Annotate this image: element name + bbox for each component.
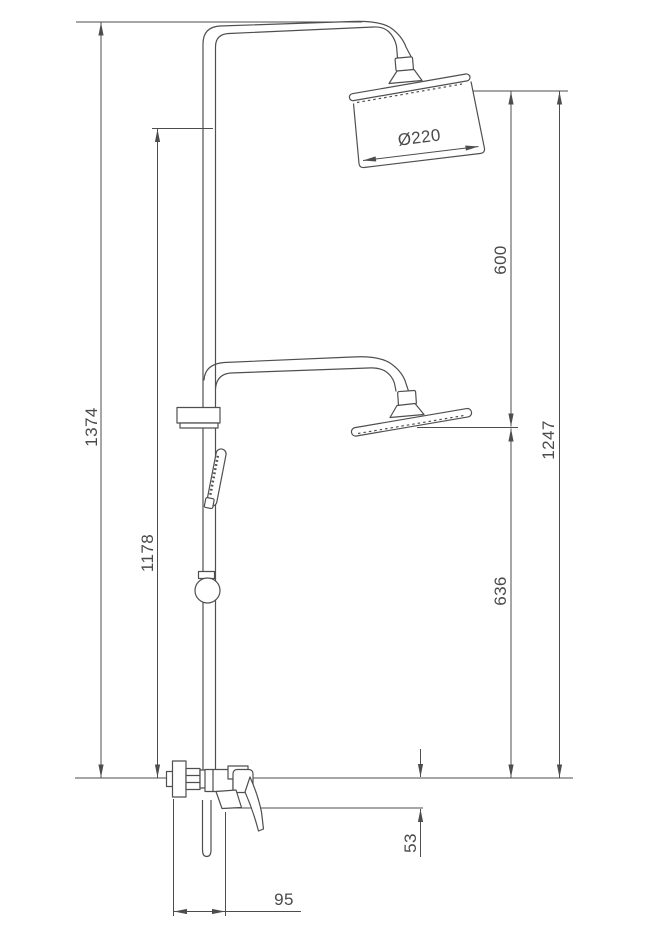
lower-head-flare [390,404,424,418]
hand-shower-clip [204,497,214,508]
slider-bracket-lip [180,423,218,428]
upper-head-connector [395,57,414,71]
slider-bracket [177,408,220,429]
dimension-label-1247: 1247 [539,420,558,459]
dimension-annotations: 1374 1178 600 636 1247 53 95 [75,22,573,916]
dimension-label-53: 53 [401,833,420,853]
mixer-hex-nut [186,769,200,790]
lower-arm-outer [204,357,409,391]
slider-bracket-body [177,408,220,424]
diverter-ball [195,578,220,603]
mixer-valve [167,761,264,857]
mixer-handle-lever [245,777,264,831]
technical-drawing-page: 1374 1178 600 636 1247 53 95 [0,0,658,936]
dimension-label-636: 636 [491,576,510,606]
upper-shower-head [349,57,485,168]
dimension-label-95: 95 [274,890,294,909]
dimension-label-600: 600 [491,245,510,275]
shower-column-dimension-drawing: 1374 1178 600 636 1247 53 95 [0,0,658,936]
shower-fixture [167,21,485,856]
dimension-label-1374: 1374 [82,407,101,446]
lower-shower-head [351,390,472,436]
lower-arm-inner [216,368,397,391]
upper-head-flare [389,70,422,84]
mixer-wall-flange [173,761,187,797]
mixer-outlet-drop-pipe [203,800,212,857]
dimension-label-1178: 1178 [138,534,157,572]
diverter-joint [195,572,220,604]
hand-shower [204,448,227,510]
